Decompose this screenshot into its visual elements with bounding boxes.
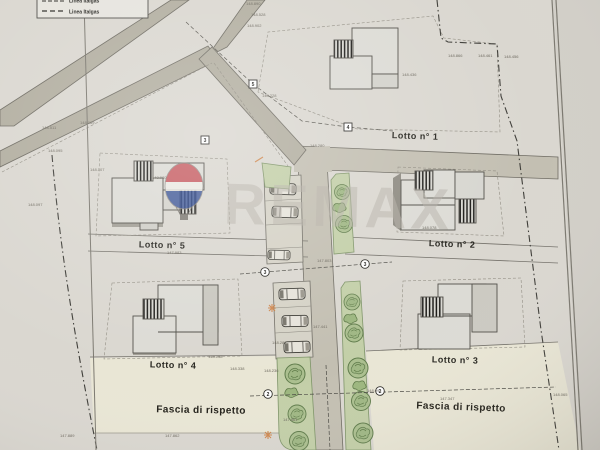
svg-text:5: 5 [252, 82, 255, 88]
tree [344, 294, 360, 310]
shrub [344, 314, 357, 324]
tree [352, 392, 371, 411]
spot-elevation: 148.511 [42, 125, 57, 130]
spot-elevation: 148.097 [28, 202, 43, 207]
spot-elevation: 148.866 [448, 53, 463, 58]
spot-elevation: 148.228 [262, 93, 277, 98]
spot-elevation: 148.158 [208, 354, 223, 359]
svg-text:2: 2 [267, 392, 270, 398]
svg-text:3: 3 [204, 138, 207, 144]
car [282, 315, 308, 326]
spot-elevation: 148.080 [152, 175, 167, 180]
spot-elevation: 147.803 [317, 258, 332, 263]
spot-elevation: 148.338 [230, 366, 245, 371]
lot-label-3: Lotto n° 3 [432, 354, 479, 365]
shrub [285, 388, 298, 398]
spot-elevation: 147.862 [165, 433, 180, 438]
utility-marker-box-3: 3 [201, 136, 209, 144]
legend-box: Linea Italgas Linea Italgas [37, 0, 148, 18]
tree [353, 423, 373, 443]
lot-label-1: Lotto n° 1 [392, 130, 439, 142]
section-marker-3-right: 3 [361, 260, 370, 269]
tree [285, 364, 305, 384]
spot-elevation: 148.461 [478, 53, 493, 58]
stairs-hatch [143, 299, 164, 319]
spot-elevation: 148.902 [247, 23, 262, 28]
spot-elevation: 147.983 [167, 250, 182, 255]
spot-elevation: 148.107 [90, 167, 105, 172]
orange-mark [268, 304, 276, 312]
orange-mark [264, 431, 272, 439]
pergola-hatch [459, 199, 476, 223]
spot-elevation: 148.528 [251, 12, 266, 17]
section-marker-2-left: 2 [264, 390, 273, 399]
fascia-label-left: Fascia di rispetto [156, 404, 246, 417]
spot-elevation: 147.861 [283, 417, 298, 422]
svg-text:3: 3 [364, 262, 367, 268]
car [284, 341, 310, 353]
spot-elevation: 148.890 [246, 1, 261, 6]
spot-elevation: 148.095 [48, 148, 63, 153]
spot-elevation: 148.065 [553, 392, 568, 397]
car [279, 288, 305, 300]
spot-elevation: 147.441 [313, 324, 328, 329]
svg-text:3: 3 [264, 270, 267, 276]
section-marker-3-left: 3 [261, 268, 270, 277]
stairs-hatch [421, 297, 443, 317]
tree [345, 324, 363, 342]
shrub [353, 381, 366, 391]
spot-elevation: 148.236 [264, 368, 279, 373]
tree [290, 432, 309, 450]
spot-elevation: 147.347 [440, 396, 455, 401]
spot-elevation: 148.287 [272, 340, 287, 345]
stairs-hatch [134, 161, 153, 181]
spot-elevation: 147.889 [60, 433, 75, 438]
legend-item-linea-italgas: Linea Italgas [69, 10, 100, 16]
balloon-basket [180, 214, 188, 220]
lot-label-2: Lotto n° 2 [429, 238, 476, 250]
site-plan-photo: REMAX 5 4 3 3 3 2 2 [0, 0, 600, 450]
spot-elevation: 148.094 [367, 388, 382, 393]
svg-text:4: 4 [347, 125, 350, 131]
site-plan-drawing: REMAX 5 4 3 3 3 2 2 [0, 0, 600, 450]
tree [348, 358, 368, 378]
legend-item-cropped: Linea Italgas [69, 0, 100, 5]
utility-marker-box-5: 5 [249, 80, 257, 88]
spot-elevation: 148.456 [504, 54, 519, 59]
lot-label-5: Lotto n° 5 [139, 239, 186, 250]
spot-elevation: 148.280 [310, 143, 325, 148]
spot-elevation: 148.078 [422, 225, 437, 230]
car [268, 250, 290, 260]
utility-marker-box-4: 4 [344, 123, 352, 131]
lot-label-4: Lotto n° 4 [150, 359, 197, 370]
stairs-hatch [334, 40, 353, 58]
remax-text-watermark: REMAX [223, 171, 454, 242]
spot-elevation: 148.069 [80, 120, 95, 125]
spot-elevation: 148.436 [402, 72, 417, 77]
